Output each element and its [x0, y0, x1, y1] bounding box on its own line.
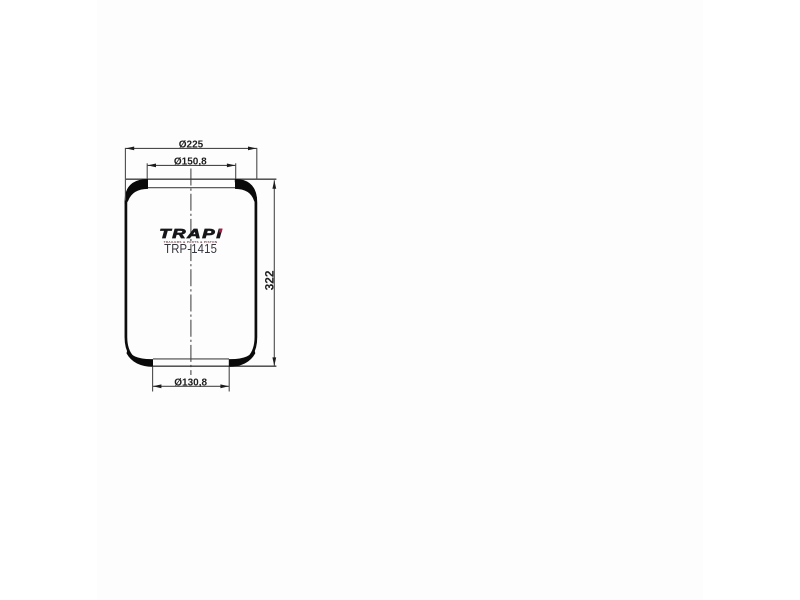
svg-text:Ø150,8: Ø150,8	[174, 157, 207, 168]
svg-text:Ø225: Ø225	[179, 140, 204, 151]
svg-text:Ø130,8: Ø130,8	[174, 377, 207, 388]
svg-text:322: 322	[262, 270, 276, 290]
svg-text:TRP-1415: TRP-1415	[164, 241, 217, 256]
